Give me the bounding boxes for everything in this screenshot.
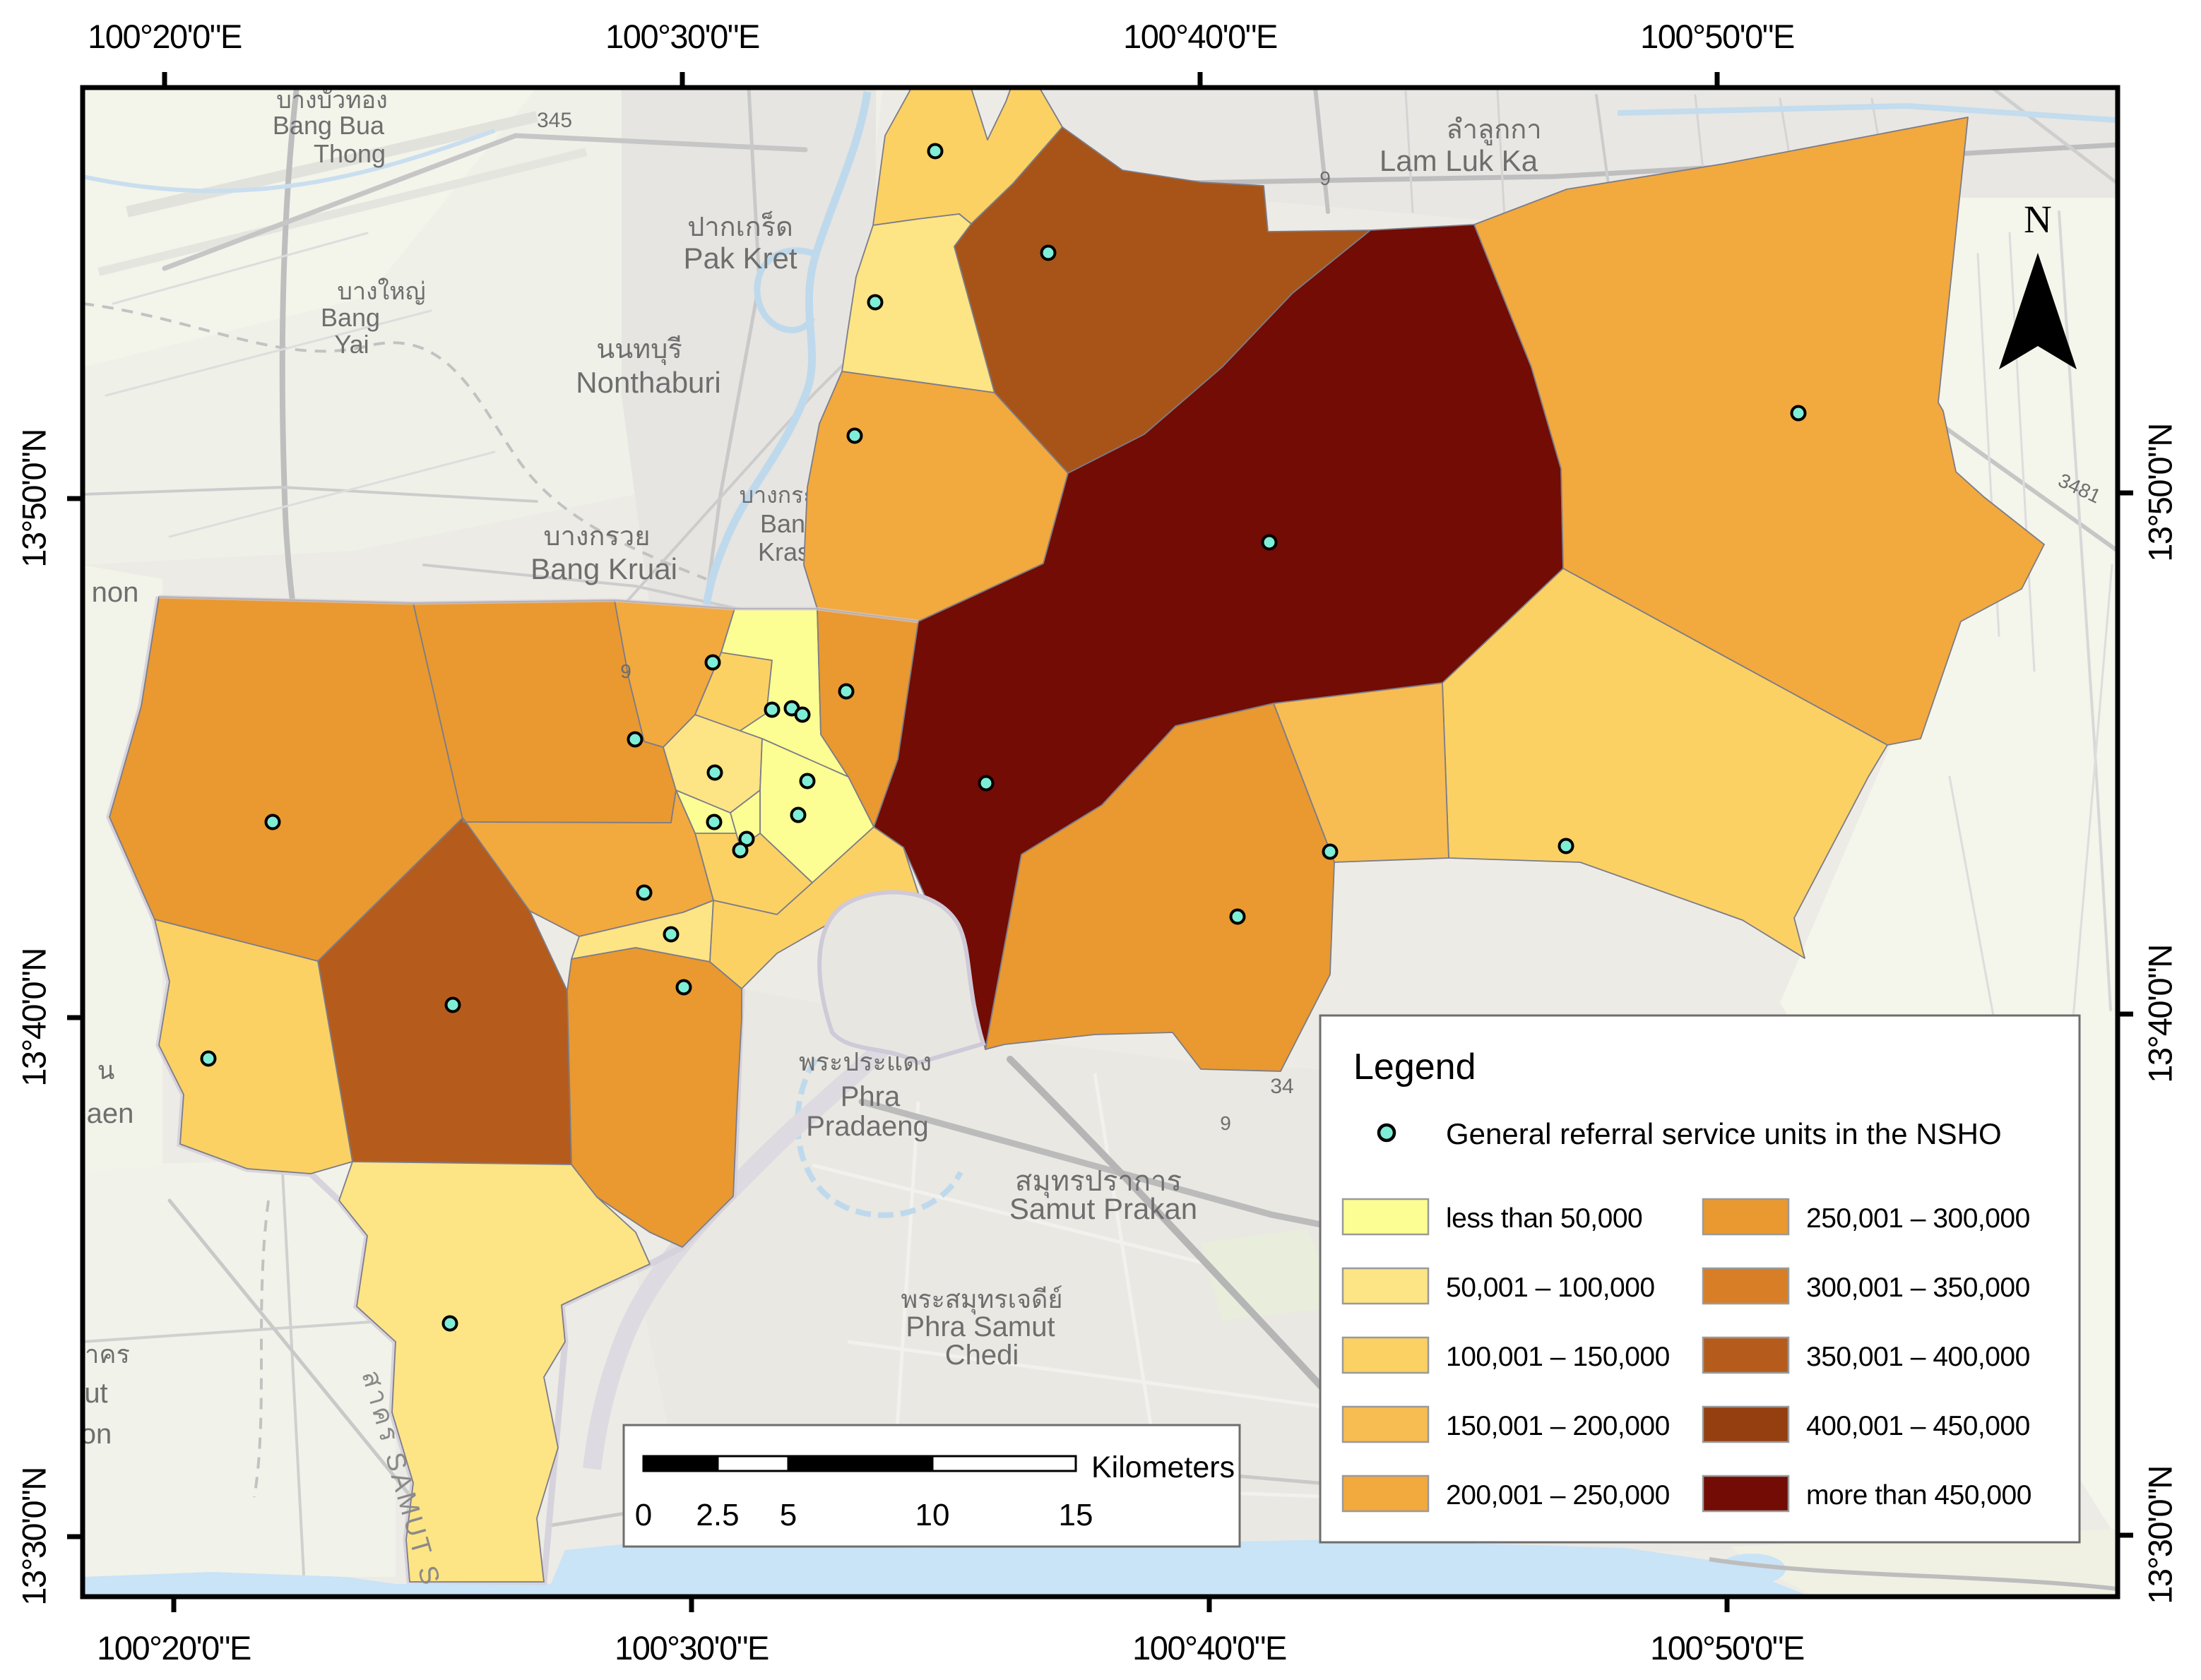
svg-text:13°50'0"N: 13°50'0"N	[2141, 424, 2178, 562]
svg-text:9: 9	[620, 660, 631, 682]
svg-text:5: 5	[780, 1498, 797, 1532]
svg-text:100°20'0"E: 100°20'0"E	[97, 1629, 251, 1667]
svg-text:350,001 – 400,000: 350,001 – 400,000	[1806, 1342, 2030, 1372]
svg-text:100°50'0"E: 100°50'0"E	[1640, 18, 1794, 55]
svg-text:ลำลูกกา: ลำลูกกา	[1446, 115, 1541, 145]
svg-text:250,001 – 300,000: 250,001 – 300,000	[1806, 1203, 2030, 1234]
svg-text:ut: ut	[84, 1378, 107, 1409]
svg-text:General referral service units: General referral service units in the NS…	[1446, 1117, 2002, 1150]
svg-text:100°30'0"E: 100°30'0"E	[605, 18, 759, 55]
svg-text:less than 50,000: less than 50,000	[1446, 1203, 1642, 1234]
svg-text:13°40'0"N: 13°40'0"N	[2141, 945, 2178, 1083]
svg-text:บางบัวทอง: บางบัวทอง	[276, 87, 387, 114]
svg-text:Samut Prakan: Samut Prakan	[1009, 1192, 1197, 1225]
svg-text:พระประแดง: พระประแดง	[799, 1047, 932, 1076]
svg-text:Phra Samut: Phra Samut	[906, 1311, 1055, 1342]
svg-text:Thong: Thong	[314, 139, 386, 168]
svg-text:Kilometers: Kilometers	[1091, 1450, 1235, 1484]
svg-text:34: 34	[1270, 1075, 1293, 1098]
svg-text:13°40'0"N: 13°40'0"N	[15, 948, 52, 1087]
svg-text:Pak Kret: Pak Kret	[683, 242, 797, 275]
svg-text:Nonthaburi: Nonthaburi	[576, 366, 720, 399]
svg-text:non: non	[92, 577, 139, 608]
svg-text:น: น	[97, 1056, 115, 1085]
svg-text:บางใหญ่: บางใหญ่	[337, 278, 425, 305]
svg-text:13°30'0"N: 13°30'0"N	[15, 1467, 52, 1606]
svg-text:Bang Bua: Bang Bua	[273, 111, 385, 140]
svg-text:100°40'0"E: 100°40'0"E	[1123, 18, 1277, 55]
svg-text:Lam Luk Ka: Lam Luk Ka	[1380, 144, 1538, 177]
svg-text:100°50'0"E: 100°50'0"E	[1650, 1629, 1804, 1667]
svg-text:ปากเกร็ด: ปากเกร็ด	[687, 210, 793, 242]
svg-text:2.5: 2.5	[696, 1498, 739, 1532]
svg-text:100°30'0"E: 100°30'0"E	[615, 1629, 769, 1667]
svg-text:นนทบุรี: นนทบุรี	[596, 335, 682, 365]
svg-text:Phra: Phra	[841, 1081, 901, 1112]
svg-text:9: 9	[1319, 167, 1331, 189]
svg-text:15: 15	[1059, 1498, 1093, 1532]
svg-text:พระสมุทรเจดีย์: พระสมุทรเจดีย์	[901, 1285, 1062, 1315]
svg-text:Legend: Legend	[1353, 1047, 1476, 1088]
svg-text:บางกรวย: บางกรวย	[543, 522, 650, 552]
svg-text:300,001 – 350,000: 300,001 – 350,000	[1806, 1273, 2030, 1303]
svg-text:Bang: Bang	[321, 303, 380, 332]
svg-text:more than 450,000: more than 450,000	[1806, 1480, 2031, 1511]
svg-text:aen: aen	[87, 1098, 134, 1129]
svg-text:Bang Kruai: Bang Kruai	[530, 552, 677, 585]
svg-text:50,001 – 100,000: 50,001 – 100,000	[1446, 1273, 1655, 1303]
svg-text:13°50'0"N: 13°50'0"N	[15, 429, 52, 568]
svg-text:100°40'0"E: 100°40'0"E	[1132, 1629, 1286, 1667]
svg-text:N: N	[2024, 198, 2052, 241]
svg-text:าคร: าคร	[85, 1340, 130, 1369]
svg-text:200,001 – 250,000: 200,001 – 250,000	[1446, 1480, 1670, 1511]
svg-text:100,001 – 150,000: 100,001 – 150,000	[1446, 1342, 1670, 1372]
svg-text:Pradaeng: Pradaeng	[806, 1111, 928, 1142]
svg-text:150,001 – 200,000: 150,001 – 200,000	[1446, 1411, 1670, 1441]
svg-text:400,001 – 450,000: 400,001 – 450,000	[1806, 1411, 2030, 1441]
svg-text:345: 345	[537, 109, 572, 132]
svg-text:100°20'0"E: 100°20'0"E	[88, 18, 242, 55]
svg-text:13°30'0"N: 13°30'0"N	[2141, 1466, 2178, 1604]
svg-text:0: 0	[635, 1498, 652, 1532]
svg-text:Chedi: Chedi	[945, 1340, 1019, 1371]
svg-text:10: 10	[915, 1498, 950, 1532]
svg-text:Yai: Yai	[334, 330, 369, 359]
svg-text:9: 9	[1220, 1112, 1231, 1134]
